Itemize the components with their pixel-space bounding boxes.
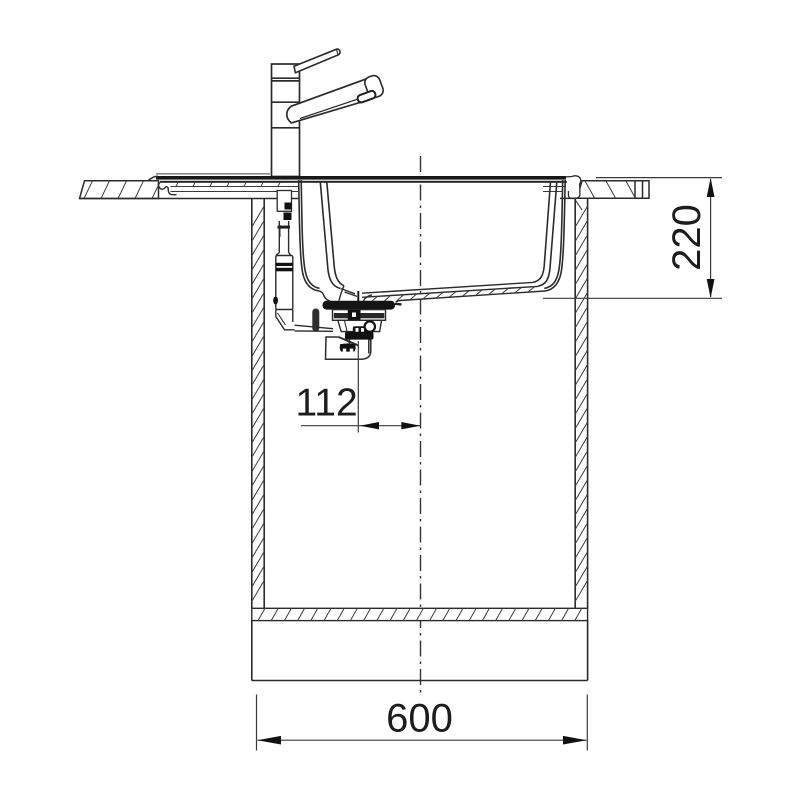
svg-text:112: 112 [296, 382, 358, 425]
svg-text:220: 220 [665, 204, 709, 271]
svg-text:600: 600 [386, 697, 453, 741]
